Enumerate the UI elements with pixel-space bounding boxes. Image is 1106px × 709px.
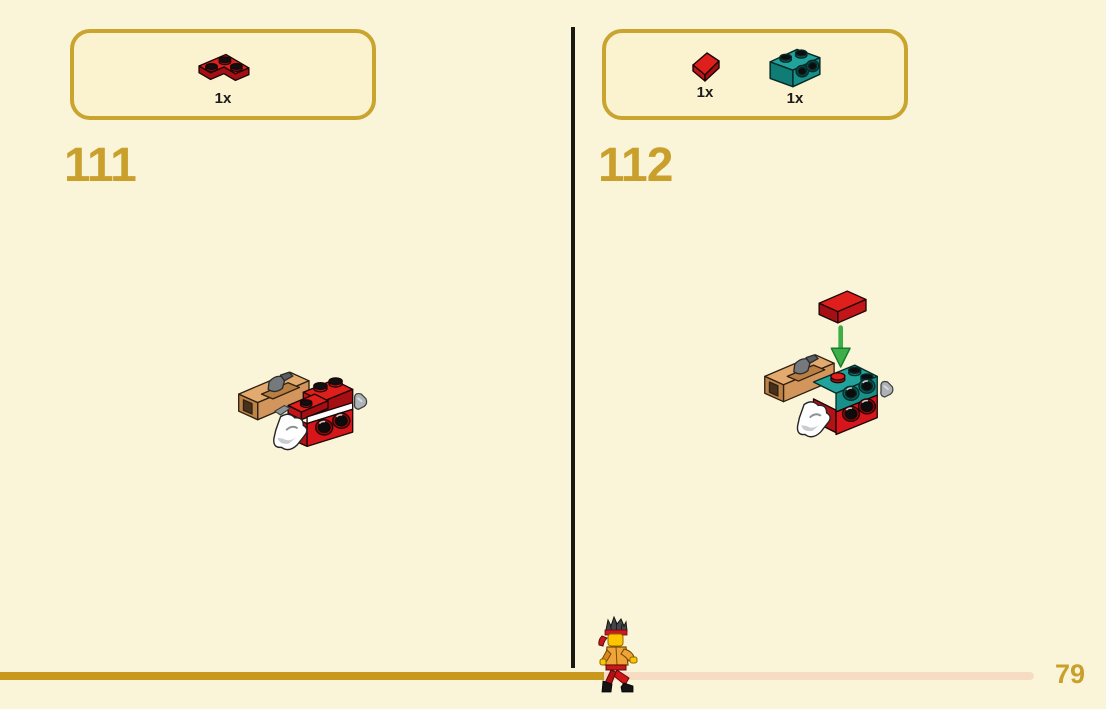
teal-bracket-icon [766, 43, 824, 89]
walking-minifigure-icon [596, 614, 638, 698]
red-corner-plate-icon [188, 43, 258, 89]
panel-divider [571, 27, 575, 668]
red-target-stud [831, 373, 845, 383]
step-number-112: 112 [598, 142, 672, 190]
part-count: 1x [697, 85, 714, 100]
step-number-111: 111 [64, 142, 136, 190]
red-slope-icon [686, 49, 724, 83]
part-red-slope: 1x [686, 49, 724, 100]
page-number: 79 [1046, 661, 1094, 688]
part-count: 1x [787, 91, 804, 106]
progress-bar-completed [0, 672, 604, 680]
parts-box-step-111: 1x [70, 29, 376, 120]
part-count: 1x [215, 91, 232, 106]
part-red-corner-plate: 1x [188, 43, 258, 106]
part-teal-bracket: 1x [766, 43, 824, 106]
instruction-page: 1x 111 [0, 0, 1106, 709]
parts-box-step-112: 1x [602, 29, 908, 120]
floating-red-slope [819, 291, 866, 323]
placement-arrow-icon [831, 328, 850, 367]
assembly-illustration-step-112 [761, 288, 911, 476]
progress-bar-remaining [604, 672, 1034, 680]
assembly-illustration-step-111 [233, 358, 385, 472]
